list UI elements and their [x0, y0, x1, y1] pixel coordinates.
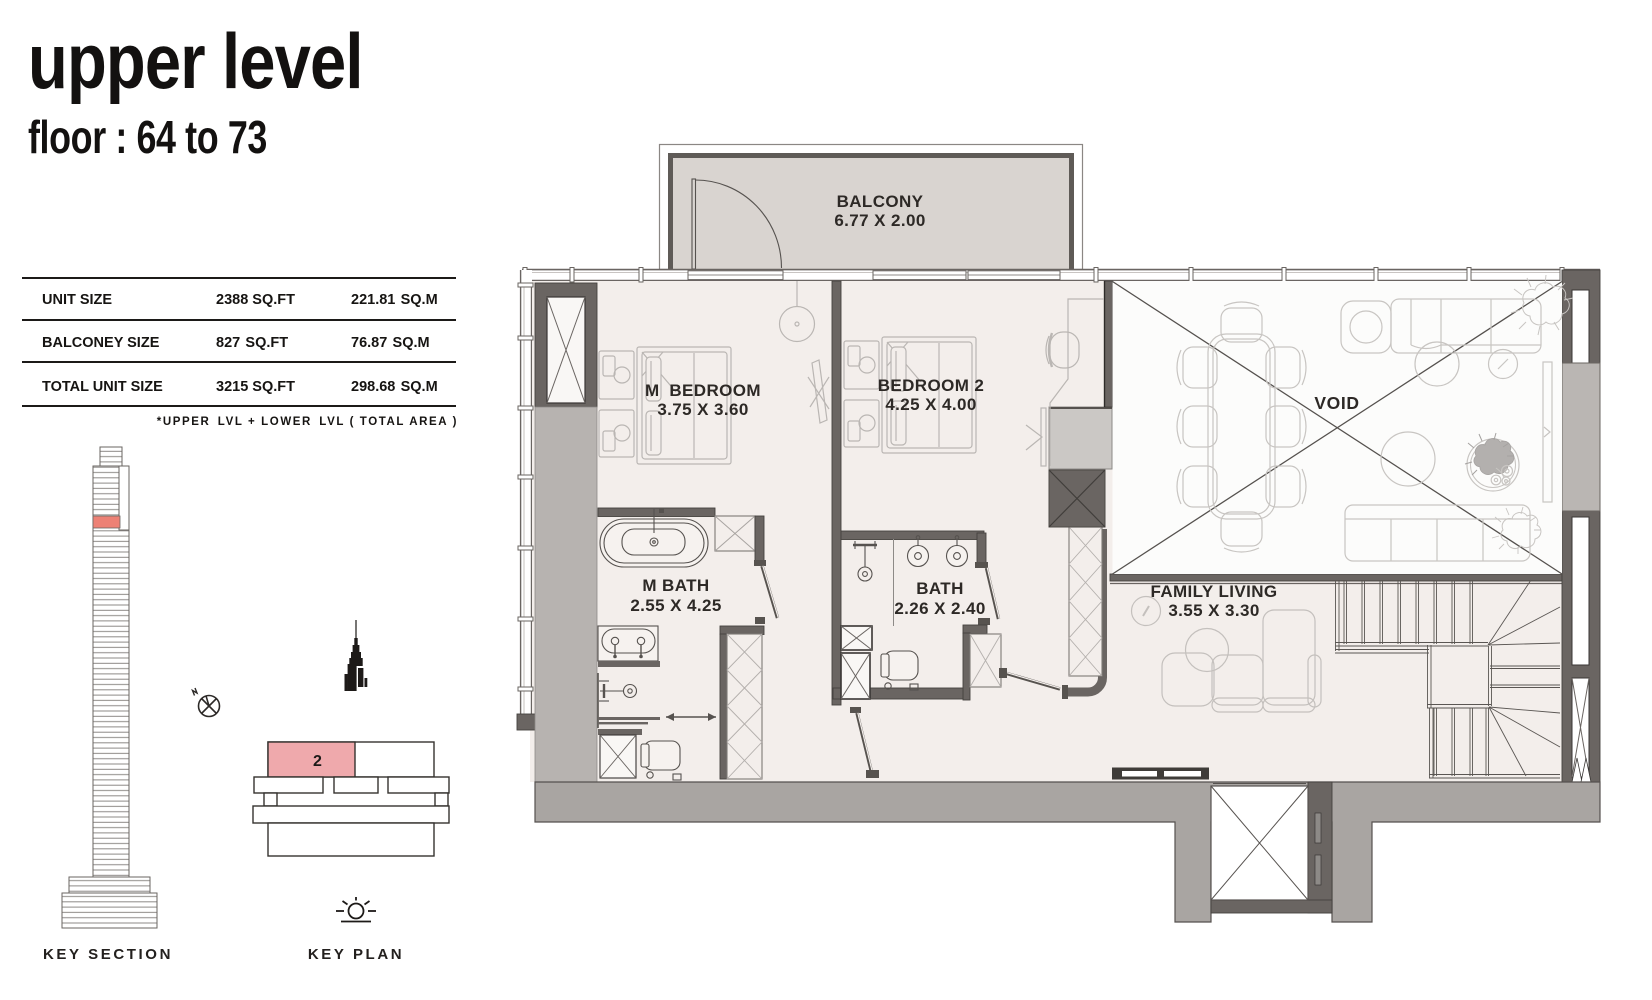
svg-text:2.55 X 4.25: 2.55 X 4.25 [630, 596, 721, 615]
svg-text:2.26 X 2.40: 2.26 X 2.40 [894, 599, 985, 618]
svg-text:3215 SQ.FT: 3215 SQ.FT [216, 379, 295, 395]
svg-text:3.55 X 3.30: 3.55 X 3.30 [1168, 601, 1259, 620]
svg-text:TOTAL UNIT SIZE: TOTAL UNIT SIZE [42, 379, 163, 395]
svg-text:VOID: VOID [1314, 393, 1359, 413]
svg-text:3.75 X 3.60: 3.75 X 3.60 [657, 400, 748, 419]
svg-text:76.87 SQ.M: 76.87 SQ.M [351, 335, 430, 351]
svg-text:M BEDROOM: M BEDROOM [645, 381, 761, 400]
svg-text:2388 SQ.FT: 2388 SQ.FT [216, 292, 295, 308]
svg-text:UNIT SIZE: UNIT SIZE [42, 292, 112, 308]
svg-text:221.81 SQ.M: 221.81 SQ.M [351, 292, 438, 308]
svg-text:6.77 X 2.00: 6.77 X 2.00 [834, 211, 925, 230]
svg-text:KEY PLAN: KEY PLAN [308, 946, 404, 963]
svg-text:BALCONY: BALCONY [837, 192, 924, 211]
svg-text:827 SQ.FT: 827 SQ.FT [216, 335, 288, 351]
svg-text:2: 2 [313, 753, 322, 770]
svg-text:M BATH: M BATH [642, 576, 709, 595]
svg-text:FAMILY LIVING: FAMILY LIVING [1150, 582, 1277, 601]
svg-text:4.25 X 4.00: 4.25 X 4.00 [885, 395, 976, 414]
svg-text:*UPPER LVL + LOWER LVL ( TOTAL: *UPPER LVL + LOWER LVL ( TOTAL AREA ) [157, 416, 458, 428]
svg-text:BATH: BATH [916, 579, 964, 598]
svg-text:BALCONEY SIZE: BALCONEY SIZE [42, 335, 160, 351]
svg-text:floor : 64 to 73: floor : 64 to 73 [28, 112, 267, 163]
svg-text:BEDROOM 2: BEDROOM 2 [878, 376, 985, 395]
svg-text:KEY SECTION: KEY SECTION [43, 946, 173, 963]
svg-text:298.68 SQ.M: 298.68 SQ.M [351, 379, 438, 395]
svg-text:upper level: upper level [28, 19, 363, 106]
